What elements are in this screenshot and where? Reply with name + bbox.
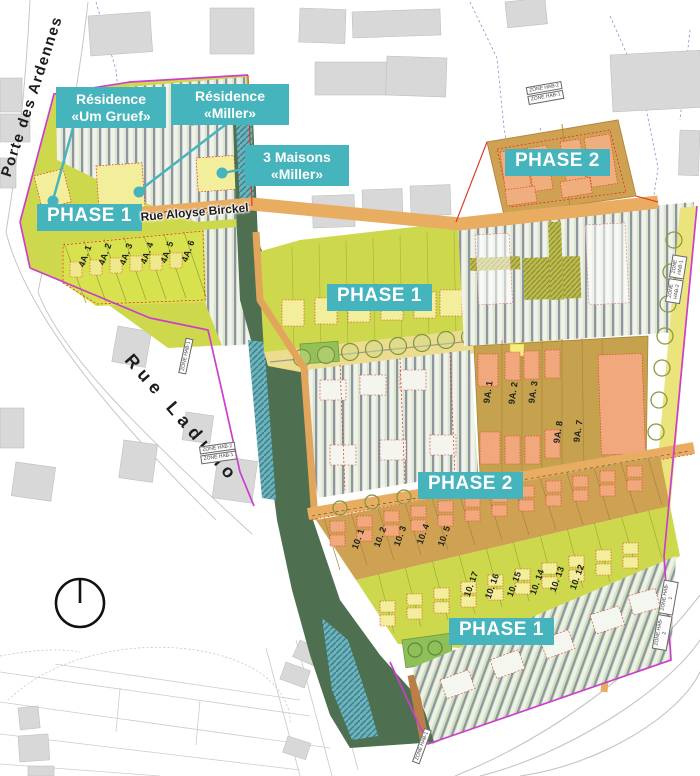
banner-phase1-northwest: PHASE 1 [37,204,142,231]
callout-um-gruef-line1: Résidence [63,91,159,108]
banner-phase1-south: PHASE 1 [449,618,554,645]
callout-um-gruef: Résidence «Um Gruef» [56,87,166,128]
lot-block-9a [474,336,648,474]
banner-phase2-northeast: PHASE 2 [505,149,610,176]
callout-um-gruef-line2: «Um Gruef» [63,108,159,125]
callout-maisons-miller: 3 Maisons «Miller» [245,145,349,186]
site-plan: Résidence «Um Gruef» Résidence «Miller» … [0,0,700,776]
maisons-miller-marker [217,168,228,179]
north-symbol [56,579,104,627]
callout-maisons-miller-line2: «Miller» [252,166,342,183]
callout-miller: Résidence «Miller» [171,84,289,125]
callout-miller-line2: «Miller» [178,105,282,122]
miller-marker [134,187,145,198]
banner-phase1-middle: PHASE 1 [327,284,432,311]
callout-miller-line1: Résidence [178,88,282,105]
banner-phase2-middle: PHASE 2 [418,472,523,499]
callout-maisons-miller-line1: 3 Maisons [252,149,342,166]
